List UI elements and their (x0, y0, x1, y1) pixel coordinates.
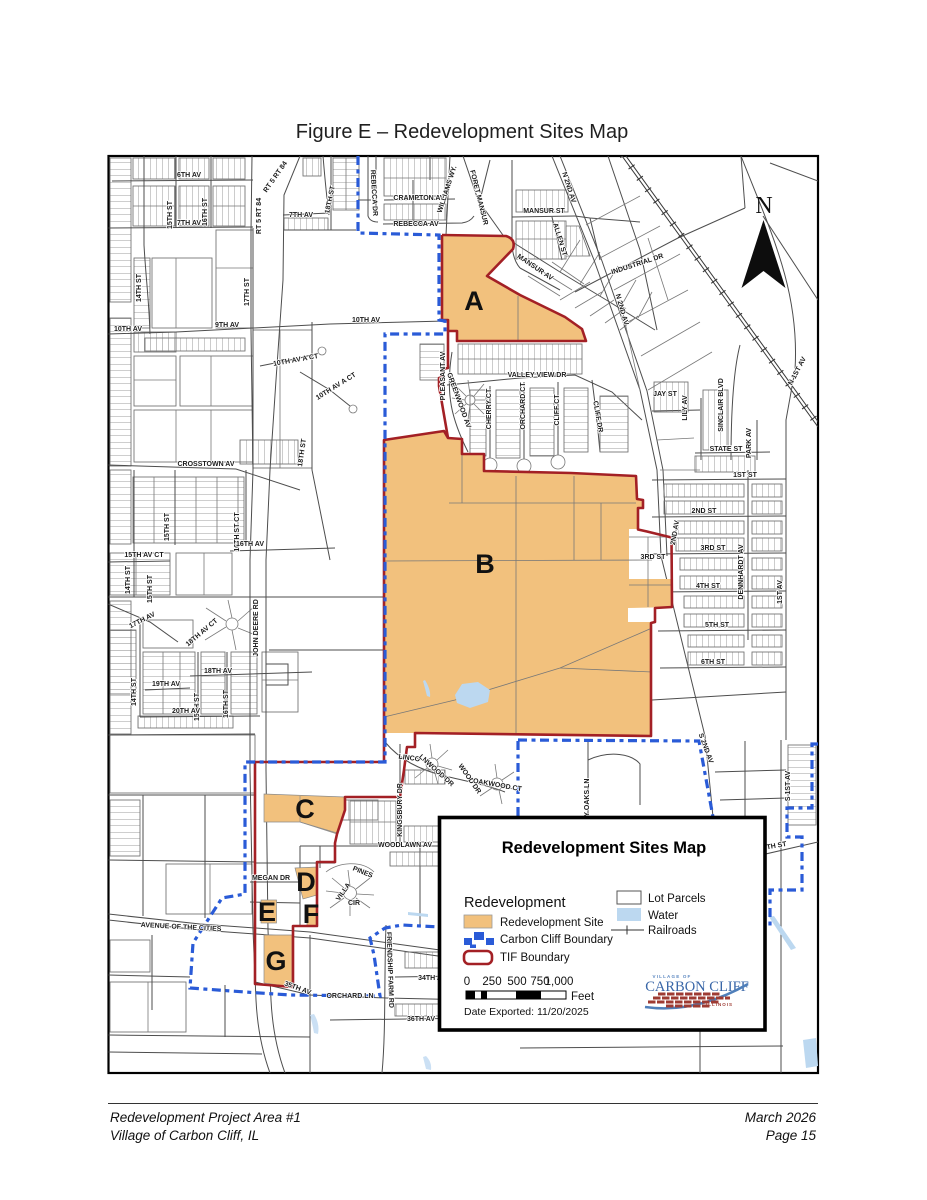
svg-text:Redevelopment Sites Map: Redevelopment Sites Map (502, 839, 706, 857)
svg-text:C: C (295, 794, 315, 824)
svg-text:LILY AV: LILY AV (682, 395, 689, 421)
svg-text:JAY ST: JAY ST (653, 391, 677, 398)
svg-text:15TH AV CT: 15TH AV CT (124, 552, 164, 559)
svg-text:Carbon Cliff Boundary: Carbon Cliff Boundary (500, 934, 613, 946)
svg-text:1ST AV: 1ST AV (777, 580, 784, 604)
svg-text:10TH AV: 10TH AV (114, 326, 142, 333)
svg-text:Date Exported: 11/20/2025: Date Exported: 11/20/2025 (464, 1006, 589, 1018)
svg-text:CIR: CIR (348, 900, 360, 907)
svg-text:Figure E – Redevelopment Sites: Figure E – Redevelopment Sites Map (296, 121, 628, 143)
svg-text:16TH ST: 16TH ST (223, 689, 230, 718)
svg-text:A: A (464, 286, 484, 316)
svg-text:3RD ST: 3RD ST (641, 554, 667, 561)
svg-text:March 2026: March 2026 (745, 1110, 817, 1125)
svg-text:RT 5 RT 84: RT 5 RT 84 (256, 198, 263, 234)
svg-text:CHERRY CT: CHERRY CT (486, 388, 493, 429)
svg-text:15TH ST: 15TH ST (167, 200, 174, 229)
svg-text:14TH ST: 14TH ST (125, 565, 132, 594)
svg-text:KINGSBURY DR: KINGSBURY DR (397, 783, 404, 837)
svg-text:Redevelopment Project Area #1: Redevelopment Project Area #1 (110, 1110, 301, 1125)
svg-text:500: 500 (507, 976, 526, 988)
svg-text:16TH ST: 16TH ST (202, 197, 209, 226)
svg-text:20TH AV: 20TH AV (172, 708, 200, 715)
svg-text:250: 250 (482, 976, 501, 988)
svg-text:15TH ST: 15TH ST (194, 692, 201, 721)
svg-text:Page 15: Page 15 (766, 1128, 817, 1143)
svg-text:Redevelopment Site: Redevelopment Site (500, 917, 604, 929)
svg-text:Lot Parcels: Lot Parcels (648, 893, 706, 905)
svg-text:ILLINOIS: ILLINOIS (706, 1002, 733, 1007)
svg-text:REBECCA AV: REBECCA AV (393, 221, 439, 228)
svg-text:15TH ST: 15TH ST (164, 512, 171, 541)
svg-text:18TH AV: 18TH AV (204, 668, 232, 675)
svg-text:RY OAKS LN: RY OAKS LN (584, 779, 591, 822)
svg-text:19TH AV: 19TH AV (152, 681, 180, 688)
svg-text:CLIFF CT: CLIFF CT (554, 394, 561, 426)
svg-text:STATE ST: STATE ST (710, 446, 744, 453)
svg-text:ORCHARD LN: ORCHARD LN (326, 993, 373, 1000)
svg-text:1,000: 1,000 (545, 976, 574, 988)
svg-text:Village of Carbon Cliff, IL: Village of Carbon Cliff, IL (110, 1128, 259, 1143)
svg-text:6TH ST: 6TH ST (701, 659, 726, 666)
svg-text:Redevelopment: Redevelopment (464, 895, 566, 911)
svg-text:Water: Water (648, 910, 678, 922)
svg-text:7TH AV: 7TH AV (177, 220, 201, 227)
svg-text:3RD ST: 3RD ST (701, 545, 727, 552)
svg-text:E: E (258, 897, 276, 927)
svg-text:VALLEY VIEW DR: VALLEY VIEW DR (508, 372, 567, 379)
svg-text:15TH ST: 15TH ST (147, 574, 154, 603)
svg-text:6TH AV: 6TH AV (177, 172, 201, 179)
svg-text:SINCLAIR BLVD: SINCLAIR BLVD (718, 378, 725, 432)
svg-text:17TH ST: 17TH ST (244, 277, 251, 306)
svg-text:7TH AV: 7TH AV (289, 212, 313, 219)
svg-text:2ND ST: 2ND ST (692, 508, 718, 515)
svg-text:16TH AV: 16TH AV (236, 541, 264, 548)
svg-text:CROSSTOWN AV: CROSSTOWN AV (177, 461, 234, 468)
svg-text:4TH ST: 4TH ST (696, 583, 721, 590)
svg-text:36TH AV: 36TH AV (407, 1016, 435, 1023)
svg-text:5TH ST: 5TH ST (705, 622, 730, 629)
svg-text:14TH ST: 14TH ST (131, 677, 138, 706)
svg-text:0: 0 (464, 976, 470, 988)
svg-text:TIF Boundary: TIF Boundary (500, 952, 570, 964)
svg-text:14TH ST: 14TH ST (136, 273, 143, 302)
svg-text:PARK AV: PARK AV (746, 428, 753, 459)
svg-text:10TH AV: 10TH AV (352, 317, 380, 324)
svg-text:DENNHARDT AV: DENNHARDT AV (738, 544, 745, 600)
svg-text:N: N (755, 193, 772, 219)
svg-text:WOODLAWN AV: WOODLAWN AV (378, 842, 432, 849)
svg-text:Feet: Feet (571, 991, 595, 1003)
svg-text:B: B (475, 549, 495, 579)
svg-text:Railroads: Railroads (648, 925, 697, 937)
svg-text:1ST ST: 1ST ST (733, 472, 757, 479)
svg-text:S 1ST AV: S 1ST AV (785, 770, 792, 801)
svg-text:D: D (296, 867, 316, 897)
svg-text:MANSUR ST: MANSUR ST (523, 208, 565, 215)
svg-text:F: F (303, 899, 320, 929)
svg-text:9TH AV: 9TH AV (215, 322, 239, 329)
svg-text:JOHN DEERE RD: JOHN DEERE RD (253, 599, 260, 657)
svg-text:G: G (265, 946, 286, 976)
svg-text:CRAMPTON AV: CRAMPTON AV (393, 195, 445, 202)
svg-text:ORCHARD CT: ORCHARD CT (520, 382, 527, 430)
svg-text:MEGAN DR: MEGAN DR (252, 875, 290, 882)
